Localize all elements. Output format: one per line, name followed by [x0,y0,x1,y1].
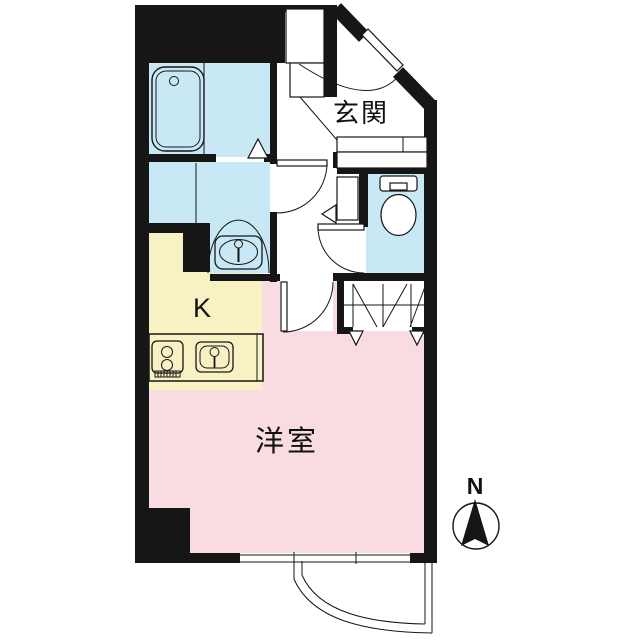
entrance-label: 玄関 [333,98,389,128]
entrance-door-leaf [362,29,403,71]
washroom-door-leaf [277,160,327,166]
door-swing-marker [322,205,336,223]
south-window [240,552,432,633]
kitchen-label: K [193,293,211,323]
bay-window-outline [294,561,432,633]
shoe-cabinet-icon [286,9,324,63]
floor-plan-drawing: N 玄関 K 洋室 [0,0,640,640]
north-label: N [467,473,484,499]
room-door-leaf [281,282,287,331]
compass: N [453,473,499,549]
entrance-step [337,137,427,152]
washroom-door-arc [277,163,327,213]
western-room-label: 洋室 [255,425,319,458]
shoe-cabinet-icon [290,63,324,97]
bathroom-floor [149,63,270,157]
toilet-door-arc [318,227,364,273]
kitchen-counter [149,334,263,381]
bay-window-outline [302,561,425,624]
entrance-step [337,152,427,168]
hall-cabinet-icon [337,177,358,220]
toilet-icon [380,176,417,236]
floor-plan: N 玄関 K 洋室 [0,0,640,640]
door-swing-area [280,281,333,331]
toilet-door-leaf [318,224,364,230]
entrance-step-line [300,97,337,140]
